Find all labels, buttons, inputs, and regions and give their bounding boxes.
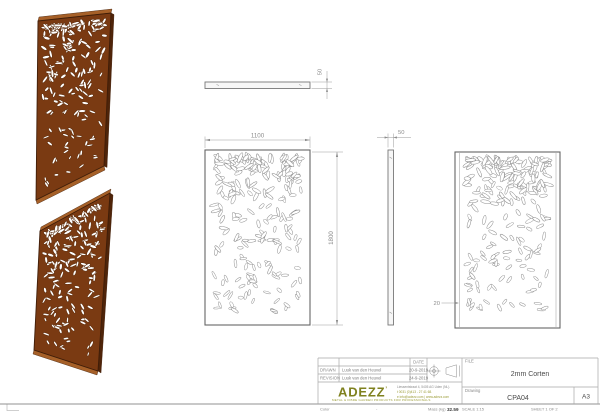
revision-name: Luuk van den Heuvel [342, 376, 381, 381]
dim-height: 1800 [328, 231, 335, 245]
color-value: - [376, 407, 378, 412]
mass-value: 32.59 [447, 407, 459, 412]
adezz-logo-mark: ’ [385, 387, 387, 393]
scale-note: SCALE 1:15 [462, 407, 485, 412]
date-header: DATE [413, 360, 424, 365]
dim-thickness-top: 50 [318, 69, 324, 75]
dim-width: 1100 [251, 133, 265, 140]
side-view-outline [388, 150, 394, 325]
front-view: 1100 1800 [205, 133, 343, 326]
top-view: 50 [205, 69, 332, 99]
dim-arrow [326, 89, 328, 92]
side-view: 50 [377, 130, 411, 325]
mass-label: Mass (kg) [428, 407, 446, 412]
top-view-outline [205, 82, 310, 89]
dim-arrow [394, 136, 397, 138]
drawing-label: Drawing [465, 388, 481, 393]
dim-flange: 20 [434, 301, 440, 307]
revision-label: REVISION [320, 376, 340, 381]
file-value: 2mm Corten [511, 371, 550, 378]
drawn-name: Luuk van den Heuvel [342, 368, 381, 373]
dim-arrow [385, 136, 388, 138]
projection-symbol-icon [428, 365, 460, 378]
drawing-canvas: 50 1100 1800 50 [0, 0, 600, 414]
color-label: Color [320, 407, 330, 412]
dim-arrow [326, 79, 328, 82]
dim-arrow [336, 152, 338, 157]
dim-arrow [205, 139, 210, 141]
iso-view-back [33, 189, 113, 375]
logo-area: ADEZZ’ METAL & FIBRE GARDEN PRODUCTS FOR… [320, 383, 461, 403]
dim-arrow [305, 139, 310, 141]
sheet-note: SHEET 1 OF 2 [531, 407, 558, 412]
adezz-address: Liessentstraat 4, 5405 AG Uden (NL). t 0… [397, 385, 450, 401]
sheet-size: A3 [582, 394, 590, 401]
dim-arrow [336, 320, 338, 325]
drawn-date: 20-9-2019 [409, 368, 429, 373]
drawn-label: DRAWN [320, 368, 336, 373]
front-view-detail: 20 [434, 152, 560, 328]
revision-date: 24-9-2019 [409, 376, 429, 381]
file-label: FILE [465, 359, 474, 364]
drawing-sheet: 50 1100 1800 50 [0, 0, 600, 414]
email-line: e info@adezz.com | www.adezz.com [397, 395, 450, 400]
drawing-number: CPA04 [507, 395, 529, 402]
corner-mark [7, 405, 19, 411]
dim-thickness-side: 50 [398, 130, 404, 136]
iso-view-front [36, 9, 114, 204]
